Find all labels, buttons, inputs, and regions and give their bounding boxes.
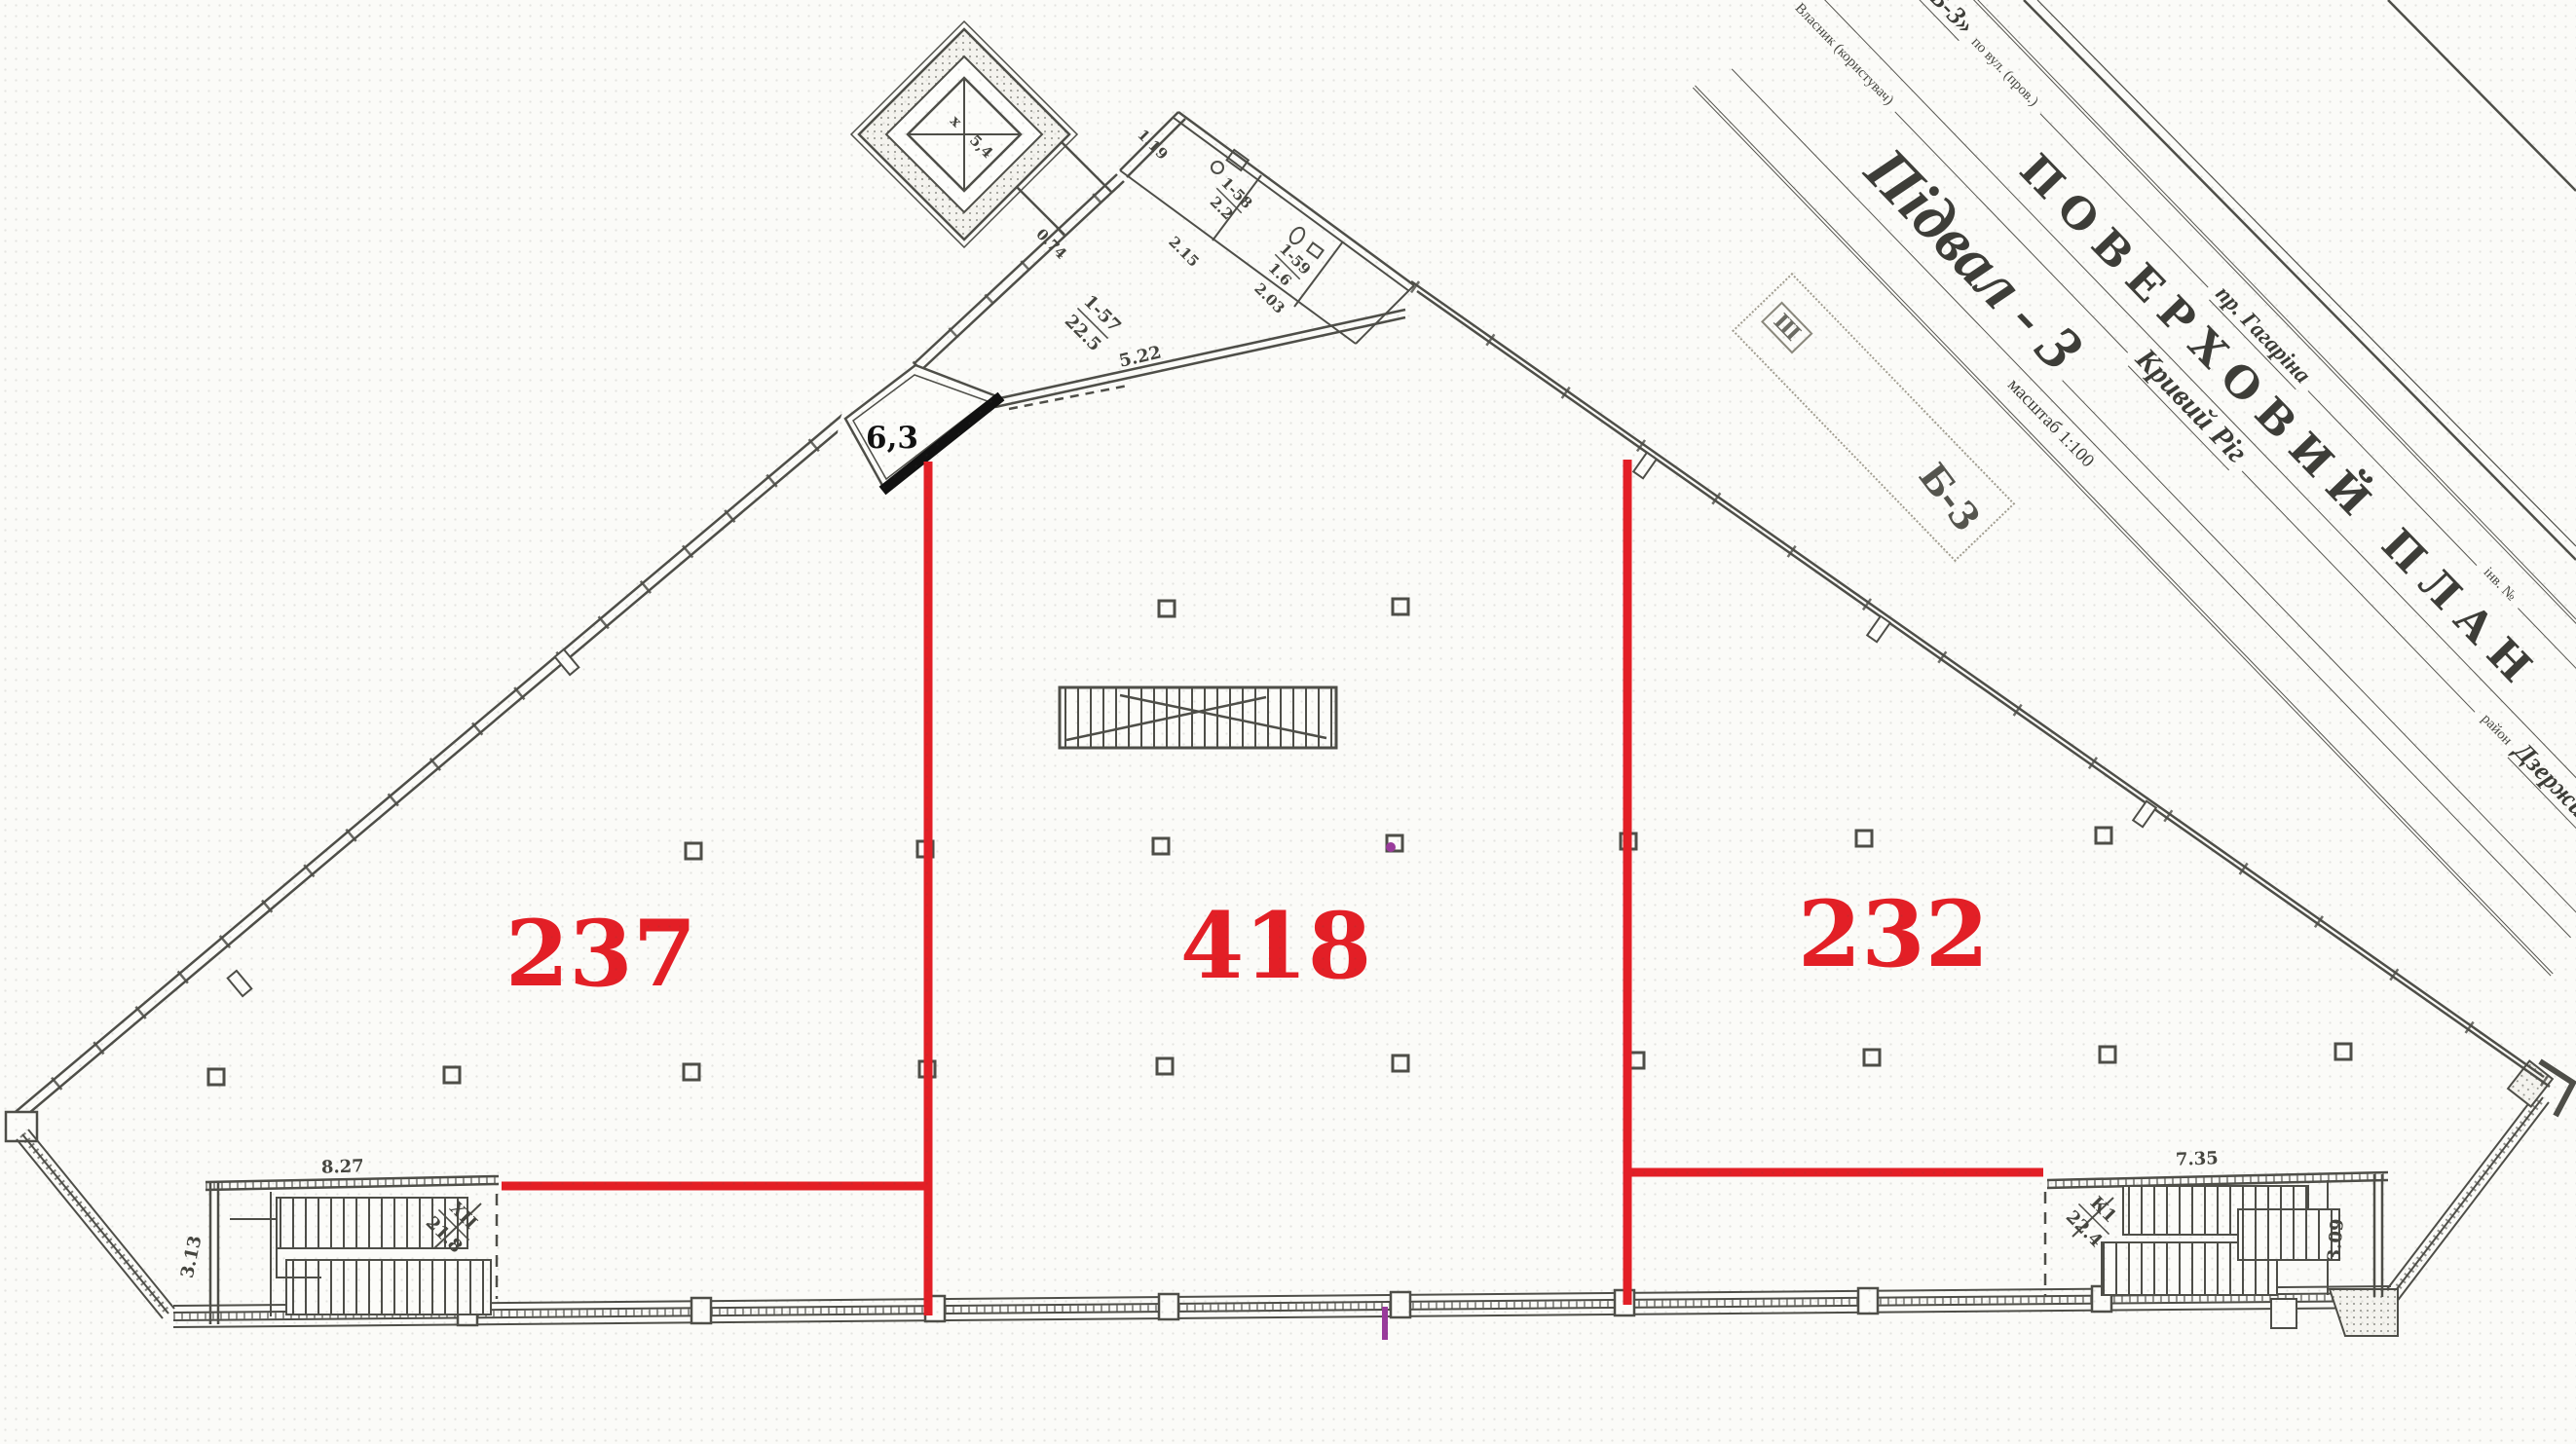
column-markers (208, 599, 2351, 1085)
room-63: 6,3 (838, 365, 1001, 495)
toilet-fixture-icon (1307, 242, 1323, 258)
wall-pilaster (2133, 801, 2156, 828)
corner-pillar (2271, 1299, 2296, 1328)
column-marker (208, 1069, 224, 1085)
stair-right-depth-label: 3.09 (2324, 1218, 2348, 1263)
stamp-symbol: Ш (1761, 302, 1812, 354)
column-marker (2335, 1044, 2351, 1059)
wall-column-block (1858, 1288, 1878, 1314)
corner-pillar (2330, 1289, 2398, 1336)
stair-left-width-label: 8.27 (321, 1156, 365, 1178)
wall-column-block (1391, 1292, 1410, 1317)
room-63-label: 6,3 (866, 421, 918, 456)
zone-area-label-left: 237 (505, 901, 696, 1008)
column-marker (684, 1064, 699, 1080)
apex-dimension-labels: 0.74 1.19 2.15 1-58 2.2 1-59 1.6 2.03 1-… (1032, 126, 1314, 372)
magenta-tick (1382, 1307, 1388, 1340)
red-zone-overlay: 237 418 232 (502, 460, 2043, 1315)
column-marker (444, 1067, 460, 1083)
column-marker (1157, 1058, 1173, 1074)
zone-area-label-center: 418 (1180, 893, 1371, 1000)
hall-number-label: 1-57 22.5 (1060, 291, 1125, 356)
bottom-wall-columns (458, 1286, 2111, 1340)
stamp-code: Б-3 (1911, 455, 1990, 539)
column-marker (2096, 828, 2111, 843)
dim-119-label: 1.19 (1134, 126, 1172, 164)
left-staircase: ХІІ 21.8 8.27 3.13 (177, 1156, 499, 1324)
dim-522-label: 5.22 (1117, 342, 1163, 371)
wall-pilaster (228, 971, 252, 996)
wall-column-block (691, 1298, 711, 1323)
stair-right-width-label: 7.35 (2176, 1148, 2220, 1170)
dim-215-label: 2.15 (1165, 233, 1203, 271)
dim-074-label: 0.74 (1032, 225, 1070, 263)
column-marker (686, 843, 701, 859)
column-marker (2100, 1047, 2115, 1062)
column-marker (1864, 1050, 1880, 1065)
wall-pilaster (1633, 453, 1657, 479)
column-marker (1393, 599, 1408, 614)
wall-pilaster (1867, 616, 1890, 643)
column-marker (1393, 1055, 1408, 1071)
column-marker (1159, 601, 1175, 616)
zone-area-label-right: 232 (1798, 881, 1989, 988)
right-staircase: К1 22.4 7.35 3.09 (2045, 1148, 2388, 1297)
sink-fixture-icon (1212, 162, 1223, 173)
lower-left-wall (17, 1129, 174, 1318)
column-marker (1153, 838, 1169, 854)
magenta-mark (1386, 842, 1396, 852)
column-marker (1856, 831, 1872, 846)
corridor-wall (1017, 187, 1064, 235)
hall-top-wall (995, 310, 1405, 409)
left-exterior-wall (11, 415, 848, 1124)
floor-plan-page: х 5,4 6,3 (0, 0, 2576, 1444)
entrance-vestibule: х 5,4 (851, 21, 1111, 247)
bottom-exterior-wall (173, 1286, 2391, 1327)
dashed-door-line (1009, 386, 1128, 409)
wall-column-block (1159, 1294, 1178, 1319)
corridor-wall (1062, 142, 1111, 192)
stair-flight (286, 1260, 491, 1314)
floor-plan-svg: х 5,4 6,3 (0, 0, 2576, 1444)
stair-left-depth-label: 3.13 (177, 1234, 206, 1279)
central-staircase (1060, 687, 1336, 748)
